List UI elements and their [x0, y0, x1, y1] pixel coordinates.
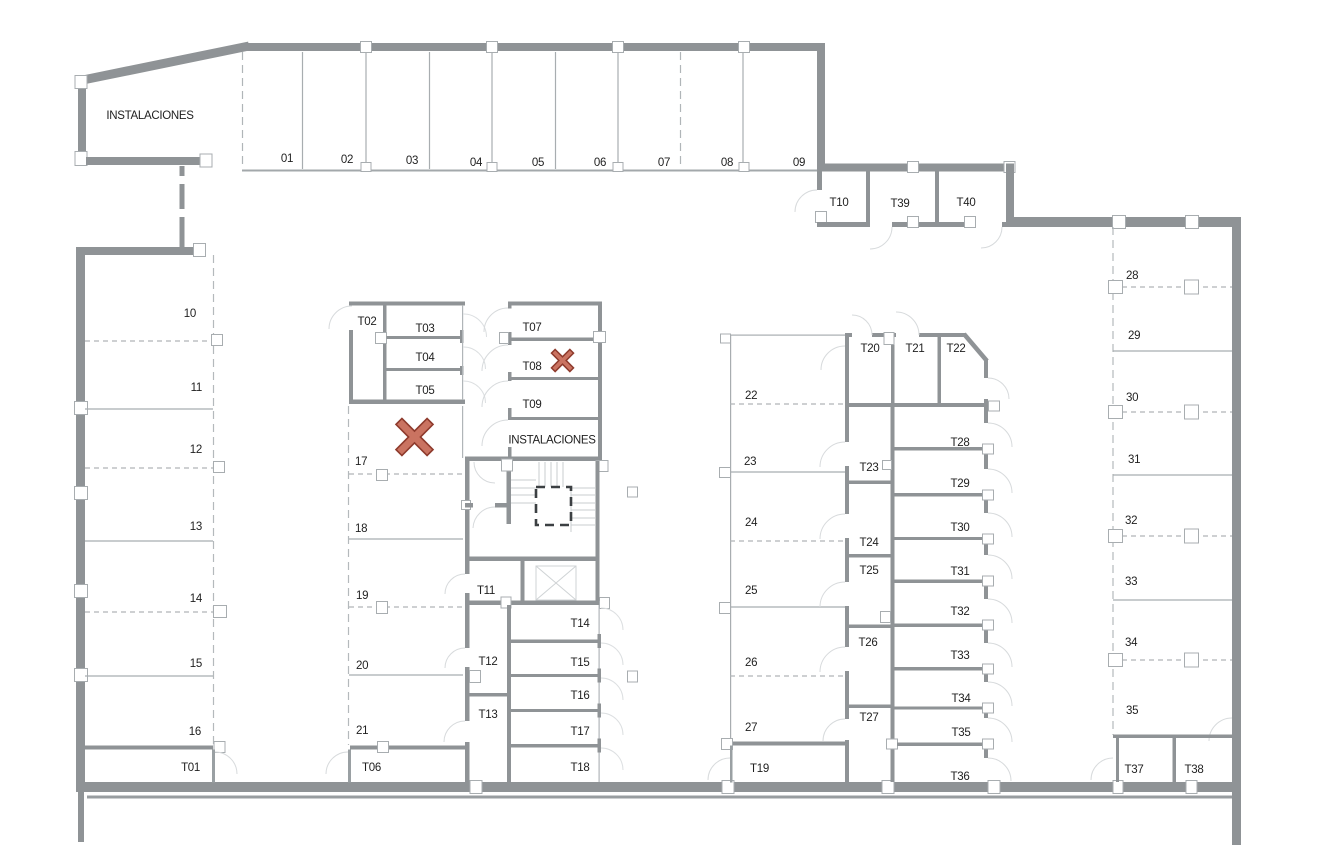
svg-text:02: 02 [341, 154, 353, 166]
svg-text:06: 06 [594, 157, 606, 169]
svg-text:T29: T29 [951, 478, 970, 490]
svg-text:T38: T38 [1185, 764, 1204, 776]
svg-text:T27: T27 [860, 712, 879, 724]
svg-text:T10: T10 [830, 197, 849, 209]
svg-text:T02: T02 [358, 316, 377, 328]
svg-text:29: 29 [1128, 330, 1140, 342]
svg-text:T01: T01 [181, 762, 200, 774]
svg-text:30: 30 [1126, 392, 1138, 404]
svg-text:35: 35 [1126, 705, 1138, 717]
svg-text:T34: T34 [952, 693, 972, 705]
svg-text:T35: T35 [952, 727, 971, 739]
svg-text:T39: T39 [891, 198, 910, 210]
svg-text:09: 09 [793, 157, 805, 169]
svg-text:03: 03 [406, 155, 418, 167]
svg-text:19: 19 [356, 590, 368, 602]
svg-text:23: 23 [744, 456, 756, 468]
svg-text:T11: T11 [477, 585, 495, 597]
svg-text:T08: T08 [523, 361, 542, 373]
svg-text:27: 27 [745, 722, 757, 734]
svg-text:T18: T18 [571, 762, 590, 774]
svg-text:01: 01 [281, 153, 293, 165]
svg-text:11: 11 [191, 382, 202, 394]
svg-text:T14: T14 [571, 618, 591, 630]
svg-text:T23: T23 [860, 462, 879, 474]
svg-text:T21: T21 [906, 343, 925, 355]
svg-text:08: 08 [721, 157, 733, 169]
svg-text:T15: T15 [571, 657, 590, 669]
svg-text:INSTALACIONES: INSTALACIONES [106, 110, 194, 122]
svg-text:T40: T40 [957, 197, 976, 209]
svg-text:T31: T31 [951, 566, 970, 578]
svg-text:T30: T30 [951, 522, 970, 534]
svg-text:32: 32 [1125, 515, 1137, 527]
svg-text:T37: T37 [1125, 764, 1144, 776]
svg-text:34: 34 [1125, 637, 1138, 649]
svg-text:16: 16 [189, 726, 201, 738]
svg-text:T36: T36 [951, 771, 970, 783]
svg-text:T07: T07 [523, 322, 542, 334]
svg-text:13: 13 [190, 521, 202, 533]
svg-text:26: 26 [745, 657, 757, 669]
svg-text:T32: T32 [951, 606, 970, 618]
svg-text:T25: T25 [860, 565, 879, 577]
svg-text:INSTALACIONES: INSTALACIONES [508, 435, 596, 447]
svg-text:15: 15 [190, 658, 202, 670]
svg-text:T05: T05 [416, 385, 435, 397]
svg-text:T09: T09 [523, 399, 542, 411]
svg-text:20: 20 [356, 660, 368, 672]
svg-text:T17: T17 [571, 726, 590, 738]
svg-text:T16: T16 [571, 690, 590, 702]
svg-text:12: 12 [190, 444, 202, 456]
svg-text:T28: T28 [951, 437, 970, 449]
svg-text:T24: T24 [860, 537, 880, 549]
svg-text:33: 33 [1125, 576, 1137, 588]
svg-text:05: 05 [532, 157, 544, 169]
svg-text:T04: T04 [416, 352, 436, 364]
svg-text:T26: T26 [859, 637, 878, 649]
svg-text:T12: T12 [479, 656, 498, 668]
svg-text:28: 28 [1126, 270, 1138, 282]
svg-text:14: 14 [190, 593, 203, 605]
svg-text:31: 31 [1128, 454, 1140, 466]
svg-text:18: 18 [355, 523, 367, 535]
svg-text:22: 22 [745, 390, 757, 402]
svg-text:04: 04 [470, 157, 483, 169]
svg-text:T19: T19 [750, 763, 769, 775]
svg-text:T06: T06 [362, 762, 381, 774]
svg-text:10: 10 [184, 308, 196, 320]
svg-text:21: 21 [356, 725, 368, 737]
svg-text:25: 25 [745, 585, 757, 597]
svg-text:T13: T13 [479, 709, 498, 721]
svg-text:17: 17 [355, 456, 367, 468]
svg-text:T33: T33 [951, 650, 970, 662]
svg-text:24: 24 [745, 517, 758, 529]
svg-text:T03: T03 [416, 323, 435, 335]
svg-text:T22: T22 [947, 343, 966, 355]
svg-text:07: 07 [658, 157, 670, 169]
svg-text:T20: T20 [861, 343, 880, 355]
